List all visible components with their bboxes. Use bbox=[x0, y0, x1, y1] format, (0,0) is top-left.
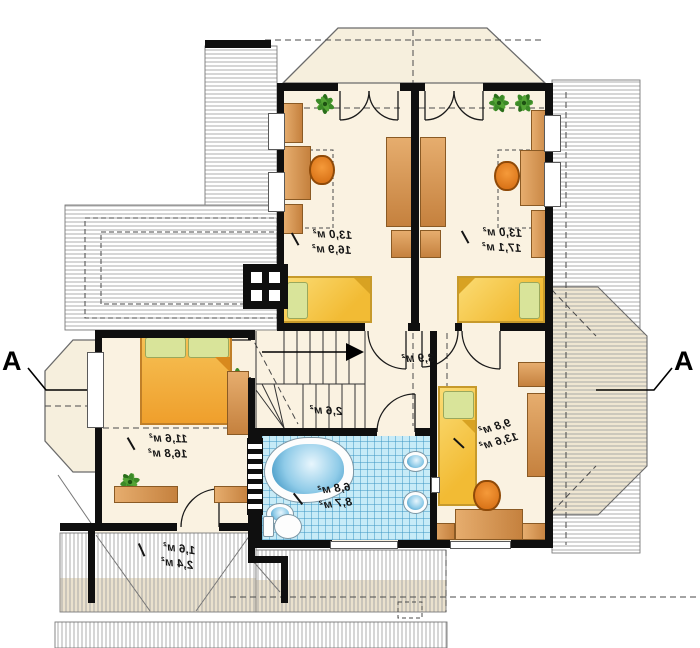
floor-plan: 13,0 м² 16,9 м² 13,0 м² 17,1 м² 3,9 м² 2… bbox=[0, 0, 700, 648]
toilet-bowl bbox=[274, 514, 302, 539]
window bbox=[87, 352, 104, 428]
wall bbox=[277, 150, 284, 172]
wall bbox=[277, 83, 284, 113]
wall bbox=[95, 428, 102, 531]
wall bbox=[545, 207, 553, 548]
window bbox=[330, 541, 398, 549]
bed bbox=[282, 276, 372, 323]
dormer-top bbox=[283, 28, 545, 83]
desk-chair bbox=[494, 161, 520, 191]
wardrobe bbox=[386, 137, 412, 227]
wall bbox=[60, 523, 177, 531]
wall bbox=[95, 330, 102, 354]
window bbox=[268, 172, 285, 212]
area-label-bedroom-bottom-left: 11,6 м² 16,8 м² bbox=[128, 431, 209, 464]
toilet-tank bbox=[263, 516, 274, 537]
cabinet bbox=[420, 230, 441, 258]
area-usable: 3,9 м² bbox=[388, 352, 448, 367]
desk-chair bbox=[473, 480, 501, 511]
area-label-hallway: 3,9 м² bbox=[388, 352, 448, 367]
bidet bbox=[403, 491, 428, 514]
wall bbox=[95, 330, 255, 338]
bed bbox=[457, 276, 545, 323]
area-total: 16,8 м² bbox=[128, 446, 208, 464]
window bbox=[268, 113, 285, 150]
roof-hatch-top-left bbox=[205, 46, 277, 206]
wall-sink bbox=[403, 451, 428, 472]
wall bbox=[281, 556, 288, 603]
area-label-bedroom-top-left: 13,0 м² 16,9 м² bbox=[291, 226, 372, 260]
area-label-bedroom-top-right: 13,0 м² 17,1 м² bbox=[461, 224, 542, 258]
sideboard bbox=[283, 103, 303, 143]
cabinet bbox=[518, 362, 546, 387]
wall bbox=[205, 40, 271, 48]
wall bbox=[455, 323, 462, 331]
chimney bbox=[243, 264, 288, 309]
section-marker-left: A bbox=[2, 346, 22, 377]
window bbox=[544, 162, 561, 207]
wall bbox=[88, 531, 95, 603]
wall-niche bbox=[431, 477, 440, 493]
desk bbox=[283, 146, 311, 200]
wall bbox=[277, 83, 338, 91]
wall bbox=[483, 83, 553, 91]
bay-window-right bbox=[552, 287, 647, 515]
wall bbox=[411, 91, 419, 323]
double-bed bbox=[140, 333, 232, 425]
wall bbox=[545, 152, 553, 162]
wall bbox=[545, 83, 553, 115]
cabinet bbox=[391, 230, 412, 258]
wall bbox=[248, 531, 255, 561]
window bbox=[450, 541, 511, 549]
wardrobe bbox=[420, 137, 446, 227]
wall bbox=[400, 83, 425, 91]
shelf bbox=[227, 371, 249, 435]
wall bbox=[255, 428, 377, 436]
wall bbox=[408, 323, 420, 331]
dresser bbox=[114, 486, 178, 503]
ventilation-flue bbox=[247, 438, 263, 515]
roof-eave-band-bottom bbox=[55, 622, 447, 648]
wall bbox=[437, 540, 450, 548]
section-marker-right: A bbox=[674, 346, 694, 377]
dresser bbox=[214, 486, 249, 503]
window bbox=[544, 115, 561, 152]
wall bbox=[248, 330, 255, 340]
desk bbox=[455, 509, 523, 540]
wall bbox=[277, 323, 365, 331]
wall bbox=[255, 540, 332, 548]
desk-chair bbox=[309, 155, 335, 185]
